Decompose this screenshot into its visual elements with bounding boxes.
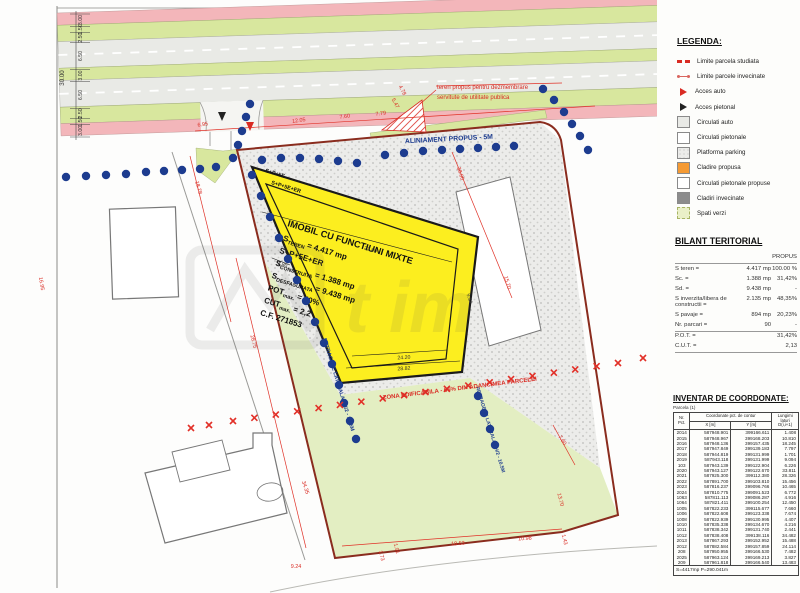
black-arrow-icon xyxy=(680,103,688,111)
legend-item: Limite parcela studiata xyxy=(677,54,797,69)
col-y: Y [m] xyxy=(731,421,772,430)
table-row: Nr. parcari =90- xyxy=(675,321,797,331)
thin-line-swatch xyxy=(677,74,690,79)
table-cell: 48,35% xyxy=(771,294,797,311)
bilant-table: PROPUS S teren =4.417 mp100.00 %Sc. =1.3… xyxy=(675,253,797,353)
table-row: S pavaje =894 mp20,23% xyxy=(675,311,797,321)
dimension-label: 28.82 xyxy=(397,366,410,373)
setback-dot xyxy=(293,276,301,284)
setback-dot xyxy=(248,171,256,179)
table-cell: - xyxy=(771,284,797,294)
road-total-dimension: 30.00 xyxy=(59,70,66,86)
coords-title: INVENTAR DE COORDONATE: xyxy=(673,394,799,403)
setback-dot xyxy=(238,127,246,135)
white-swatch xyxy=(677,177,690,189)
legend-title: LEGENDA: xyxy=(677,36,797,46)
dimension-label: 9.24 xyxy=(291,564,302,570)
table-cell: P.O.T. = xyxy=(675,331,737,341)
setback-dot xyxy=(142,168,150,176)
setback-dot xyxy=(296,154,304,162)
neighbor-building xyxy=(109,207,178,299)
setback-dot xyxy=(275,234,283,242)
legend-item: Acces auto xyxy=(677,84,797,99)
setback-dot xyxy=(234,141,242,149)
road-dimension-label: 6.50 xyxy=(78,90,84,100)
setback-dot xyxy=(258,156,266,164)
setback-dot xyxy=(352,435,360,443)
table-cell: 20,23% xyxy=(771,311,797,321)
setback-dot xyxy=(82,172,90,180)
white-swatch xyxy=(677,132,690,144)
legend-item: Circulati pietonale propuse xyxy=(677,176,797,191)
setback-dot xyxy=(419,147,427,155)
gray-swatch xyxy=(677,116,690,128)
table-row: S inverzita/libera de constructii =2.135… xyxy=(675,294,797,311)
table-cell xyxy=(737,331,771,341)
legend-item: Limite parcele invecinate xyxy=(677,69,797,84)
table-cell: Nr. parcari = xyxy=(675,321,737,331)
setback-dot xyxy=(62,173,70,181)
col-d: Lungimi laturi D(i,i+1) xyxy=(772,413,799,430)
setback-dot xyxy=(315,155,323,163)
bilant-col-header: PROPUS xyxy=(737,253,797,264)
road xyxy=(57,0,657,137)
table-row: S teren =4.417 mp100.00 % xyxy=(675,264,797,274)
coords-subtitle: Parcela (1) xyxy=(673,405,799,410)
setback-dot xyxy=(381,151,389,159)
setback-dot xyxy=(229,154,237,162)
table-cell: - xyxy=(771,321,797,331)
coordinate-inventory: INVENTAR DE COORDONATE: Parcela (1) Nr. … xyxy=(673,394,799,576)
setback-dot xyxy=(302,297,310,305)
setback-dot xyxy=(510,142,518,150)
setback-dot xyxy=(242,113,250,121)
svg-text:t im: t im xyxy=(345,268,473,348)
col-x: X [m] xyxy=(690,421,731,430)
dimension-label: 10.98 xyxy=(518,536,532,543)
coords-footer: S=4417mp P=290.041m xyxy=(674,566,799,576)
setback-dot xyxy=(257,192,265,200)
col-nr: Nr. Pct. xyxy=(674,413,690,430)
table-cell: S teren = xyxy=(675,264,737,274)
setback-dot xyxy=(568,120,576,128)
table-cell: Sc. = xyxy=(675,274,737,284)
setback-dot xyxy=(438,146,446,154)
setback-dot xyxy=(212,163,220,171)
setback-dot xyxy=(456,145,464,153)
road-dimension-label: 6.50 xyxy=(78,51,84,61)
table-cell: Sd. = xyxy=(675,284,737,294)
setback-dot xyxy=(122,170,130,178)
servitude-note-line2: servitute de utilitate publica xyxy=(437,95,510,101)
road-dimension-label: 3.00 xyxy=(78,15,84,25)
table-cell: 894 mp xyxy=(737,311,771,321)
table-cell: 4.417 mp xyxy=(737,264,771,274)
road-dimension-label: 3.00 xyxy=(78,126,84,136)
dark-gray-swatch xyxy=(677,192,690,204)
table-row: Sd. =9.438 mp- xyxy=(675,284,797,294)
territorial-balance: BILANT TERITORIAL PROPUS S teren =4.417 … xyxy=(675,236,797,353)
setback-dot xyxy=(353,159,361,167)
legend-item: Circulati auto xyxy=(677,115,797,130)
red-arrow-icon xyxy=(680,88,688,96)
road-dimension-label: 3.00 xyxy=(78,70,84,80)
setback-dot xyxy=(277,154,285,162)
table-cell: 31,42% xyxy=(771,274,797,284)
setback-dot xyxy=(334,157,342,165)
coords-table: Nr. Pct. Coordonate pct. de contur Lungi… xyxy=(673,412,799,576)
table-cell xyxy=(737,342,771,352)
table-row: Sc. =1.388 mp31,42% xyxy=(675,274,797,284)
orange-swatch xyxy=(677,162,690,174)
legend-item: Acces pietonal xyxy=(677,100,797,115)
table-cell: 100.00 % xyxy=(771,264,797,274)
setback-dot xyxy=(102,171,110,179)
setback-dot xyxy=(160,167,168,175)
setback-dot xyxy=(400,149,408,157)
table-cell: 2.135 mp xyxy=(737,294,771,311)
setback-dot xyxy=(492,143,500,151)
dashed-line-swatch xyxy=(677,60,690,63)
setback-dot xyxy=(266,213,274,221)
site-plan-page: Beneficiar: SC Grup Proiect SRL xyxy=(0,0,800,593)
legend-item: Cladire propusa xyxy=(677,160,797,175)
dimension-label: 18.53 xyxy=(451,541,465,548)
road-dimension-label: 2.50 xyxy=(78,32,84,42)
setback-dot xyxy=(539,85,547,93)
setback-dot xyxy=(178,166,186,174)
table-cell: S pavaje = xyxy=(675,311,737,321)
table-cell: S inverzita/libera de constructii = xyxy=(675,294,737,311)
setback-dot xyxy=(584,146,592,154)
green-swatch xyxy=(677,207,690,219)
setback-dot xyxy=(550,96,558,104)
table-row: C.U.T. =2,13 xyxy=(675,342,797,352)
site-plan-svg: 3.001.502.506.503.006.502.501.503.0030.0… xyxy=(0,0,657,593)
road-dimension-label: 1.50 xyxy=(78,116,84,126)
setback-dot xyxy=(196,165,204,173)
table-cell: 31,42% xyxy=(771,331,797,341)
legend-item: Cladiri invecinate xyxy=(677,191,797,206)
table-cell: 9.438 mp xyxy=(737,284,771,294)
legend: LEGENDA: Limite parcela studiata Limite … xyxy=(677,36,797,221)
table-cell: 1.388 mp xyxy=(737,274,771,284)
servitude-note-line1: teren propus pentru dezmembrare xyxy=(437,85,529,91)
table-cell: C.U.T. = xyxy=(675,342,737,352)
table-row: P.O.T. =31,42% xyxy=(675,331,797,341)
table-cell: 2,13 xyxy=(771,342,797,352)
setback-dot xyxy=(246,100,254,108)
legend-item: Spati verzi xyxy=(677,206,797,221)
legend-item: Platforma parking xyxy=(677,145,797,160)
setback-dot xyxy=(474,144,482,152)
info-panel: LEGENDA: Limite parcela studiata Limite … xyxy=(657,0,800,593)
bilant-title: BILANT TERITORIAL xyxy=(675,236,797,246)
legend-item: Circulati pietonale xyxy=(677,130,797,145)
dimension-label: 24.20 xyxy=(397,355,410,362)
stipple-swatch xyxy=(677,147,690,159)
setback-dot xyxy=(576,132,584,140)
col-group: Coordonate pct. de contur xyxy=(690,413,772,422)
setback-dot xyxy=(560,108,568,116)
table-cell: 90 xyxy=(737,321,771,331)
